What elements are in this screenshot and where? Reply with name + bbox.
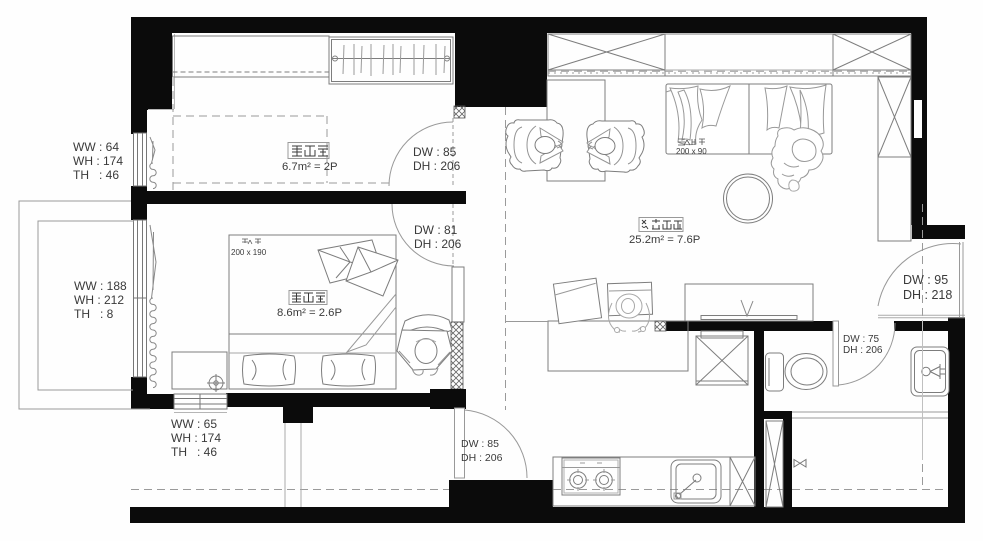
svg-text:TH : 46: TH : 46 bbox=[73, 168, 119, 182]
svg-text:6.7m² = 2P: 6.7m² = 2P bbox=[282, 161, 338, 173]
svg-text:DW : 85: DW : 85 bbox=[461, 438, 499, 450]
svg-text:200 x 90: 200 x 90 bbox=[676, 147, 707, 156]
svg-text:DH : 206: DH : 206 bbox=[461, 452, 503, 464]
svg-text:WH : 174: WH : 174 bbox=[73, 154, 123, 168]
svg-text:TH : 8: TH : 8 bbox=[74, 307, 114, 321]
svg-text:DH : 206: DH : 206 bbox=[843, 345, 883, 356]
svg-text:WW : 188: WW : 188 bbox=[74, 279, 127, 293]
svg-text:DW : 95: DW : 95 bbox=[903, 273, 948, 287]
svg-text:DH : 206: DH : 206 bbox=[413, 159, 461, 173]
svg-text:8.6m² = 2.6P: 8.6m² = 2.6P bbox=[277, 307, 342, 319]
svg-text:TH : 46: TH : 46 bbox=[171, 445, 217, 459]
svg-text:DW : 85: DW : 85 bbox=[413, 145, 457, 159]
svg-text:25.2m² = 7.6P: 25.2m² = 7.6P bbox=[629, 234, 700, 246]
svg-text:DW : 75: DW : 75 bbox=[843, 334, 880, 345]
svg-text:WH : 174: WH : 174 bbox=[171, 431, 221, 445]
svg-text:DH : 218: DH : 218 bbox=[903, 288, 952, 302]
svg-text:DH : 206: DH : 206 bbox=[414, 237, 462, 251]
svg-text:WW : 65: WW : 65 bbox=[171, 417, 217, 431]
svg-text:DW : 81: DW : 81 bbox=[414, 223, 458, 237]
svg-text:WH : 212: WH : 212 bbox=[74, 293, 124, 307]
svg-text:200 x 190: 200 x 190 bbox=[231, 248, 267, 257]
svg-text:WW : 64: WW : 64 bbox=[73, 140, 119, 154]
